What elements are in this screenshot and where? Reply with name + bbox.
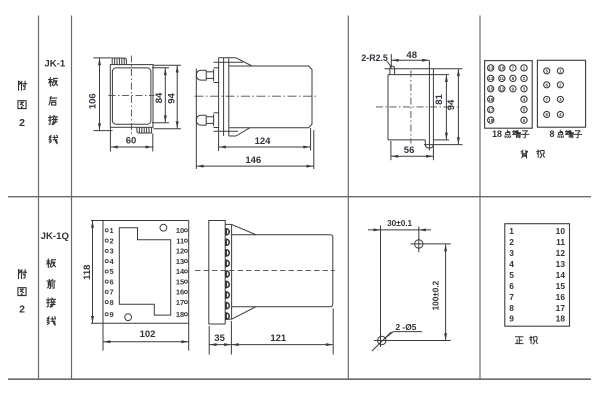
- svg-text:2: 2: [509, 237, 514, 247]
- svg-text:9: 9: [110, 310, 114, 319]
- svg-text:1: 1: [110, 226, 114, 235]
- svg-text:12: 12: [499, 87, 504, 92]
- svg-text:15: 15: [556, 281, 566, 291]
- svg-text:6: 6: [509, 281, 514, 291]
- svg-text:11: 11: [499, 76, 504, 81]
- svg-text:94: 94: [167, 93, 178, 104]
- svg-text:7: 7: [509, 292, 514, 302]
- svg-text:8: 8: [550, 129, 555, 139]
- svg-text:18: 18: [492, 129, 502, 139]
- svg-text:5: 5: [110, 267, 114, 276]
- svg-text:18: 18: [176, 310, 184, 319]
- svg-text:14: 14: [176, 267, 185, 276]
- svg-text:3: 3: [110, 247, 114, 256]
- svg-text:13: 13: [488, 66, 493, 71]
- svg-text:10: 10: [499, 66, 504, 71]
- svg-text:16: 16: [176, 288, 184, 297]
- svg-text:2: 2: [19, 117, 25, 129]
- svg-text:JK-1: JK-1: [44, 59, 65, 70]
- svg-text:121: 121: [270, 333, 287, 344]
- svg-text:11: 11: [176, 236, 184, 245]
- svg-text:2-R2.5: 2-R2.5: [361, 53, 388, 63]
- svg-text:17: 17: [176, 298, 184, 307]
- svg-text:13: 13: [176, 257, 184, 266]
- svg-text:JK-1Q: JK-1Q: [41, 231, 70, 242]
- svg-text:18: 18: [556, 314, 566, 324]
- svg-text:124: 124: [255, 136, 272, 147]
- svg-text:94: 94: [446, 99, 457, 110]
- svg-text:14: 14: [556, 270, 566, 280]
- svg-text:15: 15: [176, 277, 184, 286]
- svg-text:17: 17: [488, 107, 493, 112]
- svg-text:10: 10: [176, 226, 184, 235]
- svg-text:5: 5: [509, 270, 514, 280]
- svg-text:2 -Ø5: 2 -Ø5: [396, 322, 417, 332]
- svg-text:60: 60: [126, 136, 137, 147]
- svg-text:35: 35: [214, 333, 225, 344]
- svg-text:16: 16: [556, 292, 566, 302]
- svg-text:102: 102: [140, 329, 156, 340]
- svg-text:10: 10: [556, 226, 566, 236]
- svg-text:9: 9: [509, 314, 514, 324]
- svg-text:106: 106: [87, 93, 98, 109]
- svg-text:146: 146: [245, 155, 261, 166]
- svg-text:11: 11: [556, 237, 565, 247]
- svg-text:48: 48: [406, 50, 417, 61]
- svg-text:1: 1: [509, 226, 514, 236]
- svg-text:30±0.1: 30±0.1: [387, 219, 412, 228]
- svg-text:2: 2: [19, 304, 25, 316]
- svg-text:13: 13: [556, 259, 566, 269]
- svg-text:100±0.2: 100±0.2: [431, 280, 440, 310]
- svg-text:12: 12: [556, 248, 566, 258]
- svg-text:7: 7: [110, 288, 114, 297]
- svg-text:81: 81: [434, 93, 445, 104]
- svg-text:2: 2: [110, 236, 114, 245]
- svg-text:84: 84: [154, 92, 165, 103]
- svg-text:118: 118: [82, 265, 93, 280]
- svg-text:18: 18: [488, 118, 493, 123]
- svg-text:17: 17: [556, 303, 566, 313]
- svg-text:4: 4: [509, 259, 514, 269]
- svg-text:8: 8: [110, 298, 114, 307]
- svg-text:15: 15: [488, 87, 493, 92]
- svg-text:12: 12: [176, 247, 184, 256]
- svg-text:6: 6: [110, 277, 114, 286]
- svg-text:56: 56: [404, 145, 415, 156]
- svg-text:16: 16: [488, 97, 493, 102]
- svg-text:8: 8: [509, 303, 514, 313]
- svg-text:14: 14: [488, 76, 493, 81]
- svg-text:3: 3: [509, 248, 514, 258]
